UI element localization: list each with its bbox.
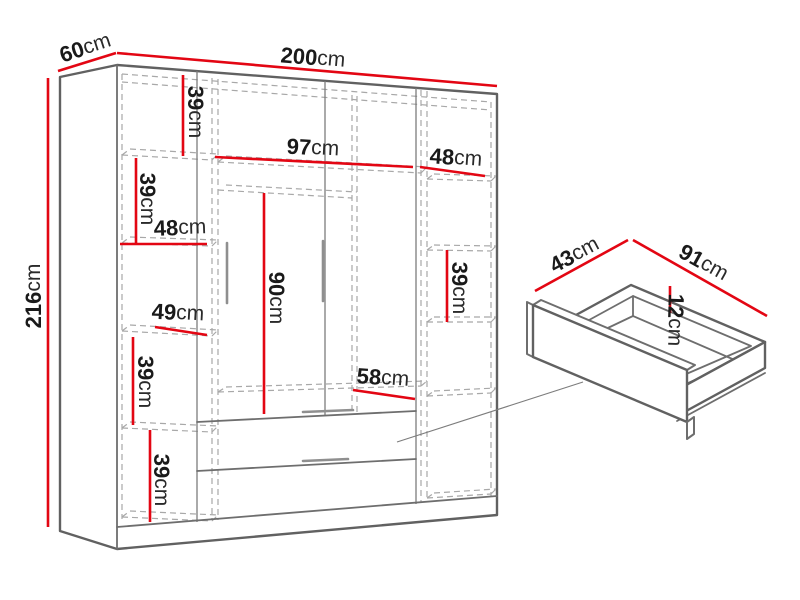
dim-drawer-depth-43cm: 43cm	[535, 231, 628, 291]
diagram-canvas: 200cm 60cm 216cm 39cm 39cm 48cm 49cm	[0, 0, 800, 600]
dim-label: 39cm	[448, 262, 473, 314]
dim-label: 216cm	[21, 264, 46, 329]
dim-label: 39cm	[150, 454, 175, 506]
drawer-detail-view	[527, 285, 765, 439]
dim-label: 12cm	[663, 293, 690, 346]
dim-label: 39cm	[184, 86, 209, 138]
dim-label: 49cm	[151, 298, 205, 326]
dim-drawer-height-12cm: 12cm	[663, 286, 690, 347]
dim-label: 39cm	[134, 356, 159, 408]
dim-shelf-39cm-right: 39cm	[447, 250, 473, 322]
dim-label: 60cm	[56, 27, 114, 67]
dim-label: 91cm	[675, 238, 733, 285]
furniture-dimension-diagram: 200cm 60cm 216cm 39cm 39cm 48cm 49cm	[0, 0, 800, 600]
dim-label: 90cm	[265, 272, 290, 324]
dim-label: 48cm	[429, 143, 483, 172]
dim-label: 97cm	[286, 133, 340, 161]
dim-depth-60cm: 60cm	[56, 27, 116, 71]
dim-label: 58cm	[356, 363, 410, 392]
dim-height-216cm: 216cm	[21, 78, 49, 527]
dim-label: 48cm	[153, 214, 206, 241]
drawer-front-panel-foot	[687, 417, 694, 439]
